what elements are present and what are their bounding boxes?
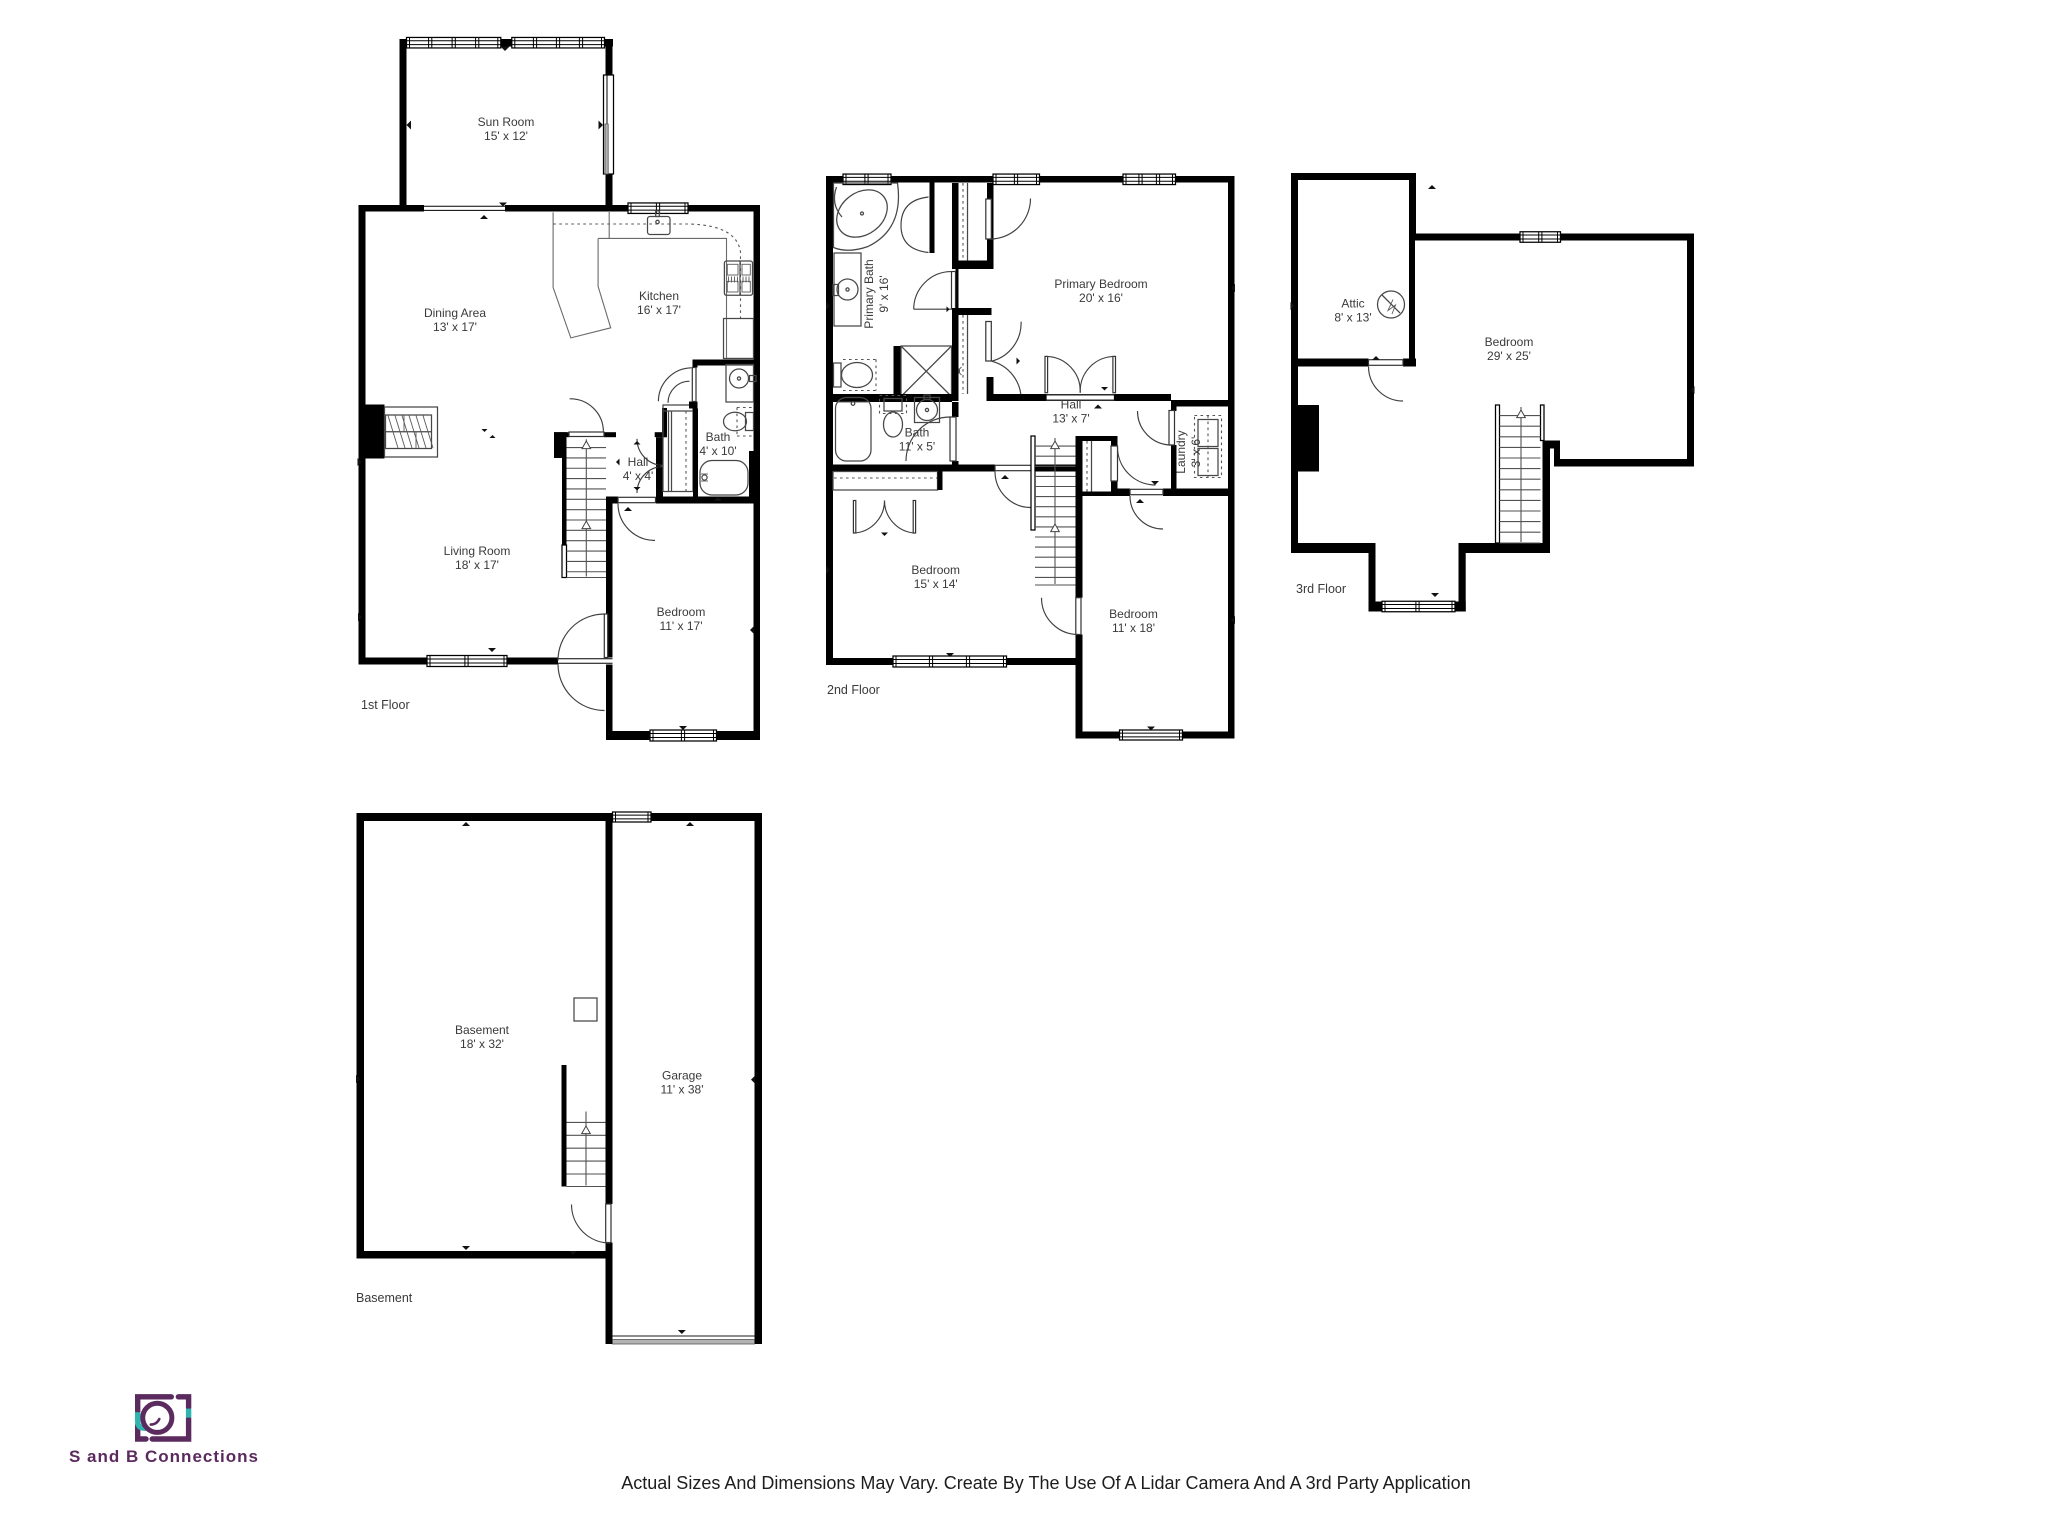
svg-text:9' x 16': 9' x 16'	[877, 275, 891, 312]
svg-text:Sun Room: Sun Room	[478, 115, 535, 129]
svg-text:Bedroom: Bedroom	[911, 563, 960, 577]
svg-text:3rd Floor: 3rd Floor	[1296, 582, 1346, 596]
svg-text:8' x 13': 8' x 13'	[1334, 310, 1371, 324]
svg-text:18' x 17': 18' x 17'	[455, 558, 499, 572]
svg-text:Primary Bath: Primary Bath	[862, 259, 876, 328]
svg-text:Living Room: Living Room	[444, 544, 511, 558]
svg-text:20' x 16': 20' x 16'	[1079, 291, 1123, 305]
svg-text:Bath: Bath	[706, 430, 731, 444]
svg-text:S and B Connections: S and B Connections	[69, 1447, 259, 1466]
svg-text:11' x 17': 11' x 17'	[659, 619, 702, 633]
svg-text:13' x 17': 13' x 17'	[433, 320, 477, 334]
svg-text:Bedroom: Bedroom	[657, 605, 706, 619]
svg-text:11' x 38': 11' x 38'	[660, 1082, 703, 1096]
svg-text:Hall: Hall	[628, 455, 649, 469]
svg-text:Bedroom: Bedroom	[1109, 607, 1158, 621]
svg-text:Basement: Basement	[455, 1023, 510, 1037]
svg-text:11' x 5': 11' x 5'	[899, 439, 935, 453]
svg-text:2nd Floor: 2nd Floor	[827, 683, 880, 697]
svg-text:18' x 32': 18' x 32'	[460, 1037, 504, 1051]
svg-text:Dining Area: Dining Area	[424, 306, 486, 320]
svg-text:Hall: Hall	[1061, 398, 1082, 412]
svg-text:Kitchen: Kitchen	[639, 289, 679, 303]
svg-text:15' x 14': 15' x 14'	[914, 577, 958, 591]
svg-text:15' x 12': 15' x 12'	[484, 129, 528, 143]
svg-text:Garage: Garage	[662, 1069, 702, 1083]
svg-text:Basement: Basement	[356, 1291, 413, 1305]
svg-text:Bath: Bath	[905, 426, 930, 440]
svg-text:29' x 25': 29' x 25'	[1487, 349, 1531, 363]
svg-text:Laundry: Laundry	[1174, 430, 1188, 473]
svg-text:Primary Bedroom: Primary Bedroom	[1054, 277, 1147, 291]
svg-text:3' x 6': 3' x 6'	[1189, 437, 1203, 468]
svg-text:16' x 17': 16' x 17'	[637, 303, 681, 317]
svg-text:Actual Sizes And Dimensions Ma: Actual Sizes And Dimensions May Vary. Cr…	[621, 1473, 1470, 1493]
svg-text:11' x 18': 11' x 18'	[1112, 621, 1155, 635]
svg-text:Bedroom: Bedroom	[1485, 335, 1534, 349]
svg-text:1st Floor: 1st Floor	[361, 698, 410, 712]
svg-text:Attic: Attic	[1341, 297, 1364, 311]
svg-text:13' x 7': 13' x 7'	[1052, 411, 1089, 425]
svg-text:4' x 4': 4' x 4'	[623, 469, 654, 483]
svg-text:4' x 10': 4' x 10'	[699, 444, 736, 458]
